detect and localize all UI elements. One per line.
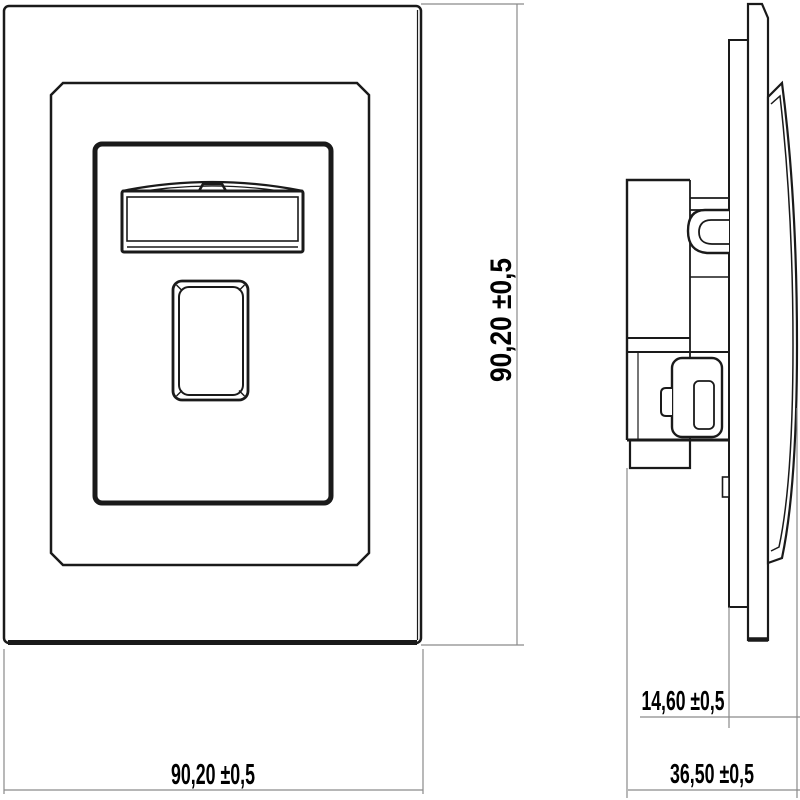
- mechanism-top-clip: [688, 210, 729, 253]
- dim-label-front-width: 90,20 ±0,5: [171, 759, 255, 791]
- socket-opening-outer: [173, 281, 248, 400]
- technical-drawing-page: 90,20 ±0,5 90,20 ±0,5 14,60 ±0,5 36,50 ±…: [0, 0, 800, 800]
- side-mechanism: [627, 180, 729, 497]
- side-face-plate: [748, 4, 768, 640]
- dim-label-side-protrusion: 14,60 ±0,5: [642, 685, 725, 716]
- dim-label-side-total: 36,50 ±0,5: [670, 758, 754, 789]
- support-plate-slot: [723, 477, 730, 497]
- technical-drawing: 90,20 ±0,5 90,20 ±0,5 14,60 ±0,5 36,50 ±…: [0, 0, 800, 800]
- socket-opening: [173, 281, 248, 400]
- mechanism-bottom-step: [630, 440, 690, 468]
- dim-label-front-height: 90,20 ±0,5: [485, 258, 518, 382]
- side-support-plate: [729, 40, 748, 607]
- side-view: [627, 4, 797, 640]
- front-view: [4, 6, 421, 643]
- label-window: [122, 182, 303, 252]
- mechanism-claw-bump: [661, 388, 672, 416]
- label-window-outer: [122, 191, 303, 252]
